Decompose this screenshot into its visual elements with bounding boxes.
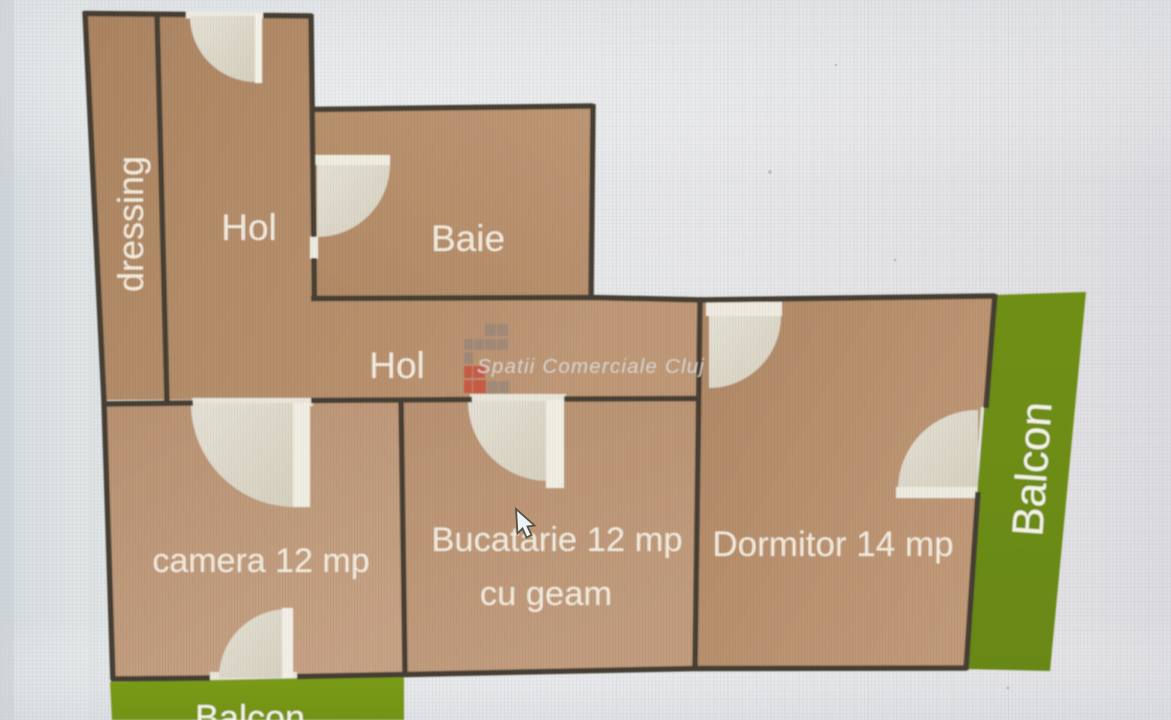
svg-text:Spatii Comerciale Cluj: Spatii Comerciale Cluj	[477, 355, 705, 378]
svg-text:Balcon: Balcon	[195, 697, 305, 720]
svg-text:Balcon: Balcon	[1003, 400, 1061, 538]
